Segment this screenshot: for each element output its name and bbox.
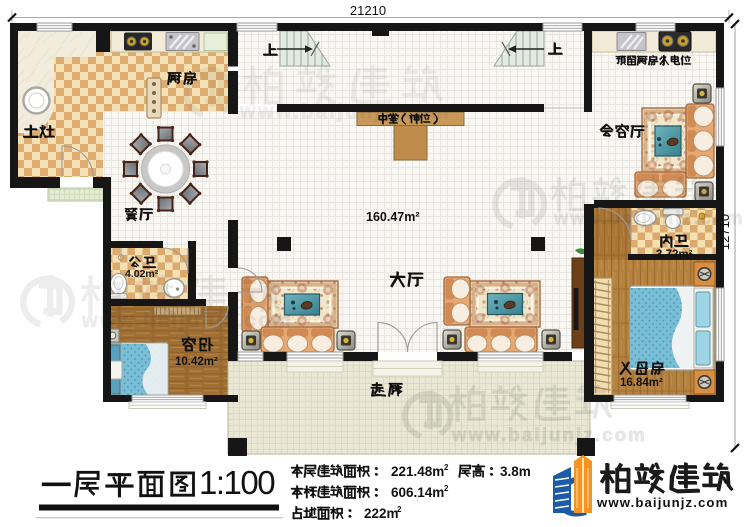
- svg-text:1:100: 1:100: [199, 464, 275, 501]
- svg-text:221.48m: 221.48m: [391, 464, 444, 479]
- svg-text:10.42m²: 10.42m²: [175, 356, 218, 368]
- svg-text:www.baijunjz.com: www.baijunjz.com: [553, 208, 745, 228]
- svg-text:www.baijunjz.com: www.baijunjz.com: [596, 495, 728, 510]
- svg-text:3.8m: 3.8m: [500, 464, 531, 479]
- svg-text:160.47m²: 160.47m²: [366, 210, 420, 224]
- svg-text:2: 2: [397, 505, 402, 514]
- svg-text:4.02m²: 4.02m²: [125, 268, 159, 280]
- svg-text:16.84m²: 16.84m²: [620, 377, 663, 389]
- svg-text:222m: 222m: [364, 506, 399, 521]
- svg-text:www.baijunjz.com: www.baijunjz.com: [451, 424, 647, 445]
- svg-text:2: 2: [444, 463, 449, 472]
- svg-text:www.baijunjz.com: www.baijunjz.com: [81, 310, 293, 332]
- svg-text:12710: 12710: [717, 214, 732, 250]
- svg-text:606.14m: 606.14m: [391, 485, 444, 500]
- svg-text:3.72m²: 3.72m²: [656, 249, 693, 261]
- svg-text:21210: 21210: [350, 3, 386, 18]
- svg-text:2: 2: [444, 484, 449, 493]
